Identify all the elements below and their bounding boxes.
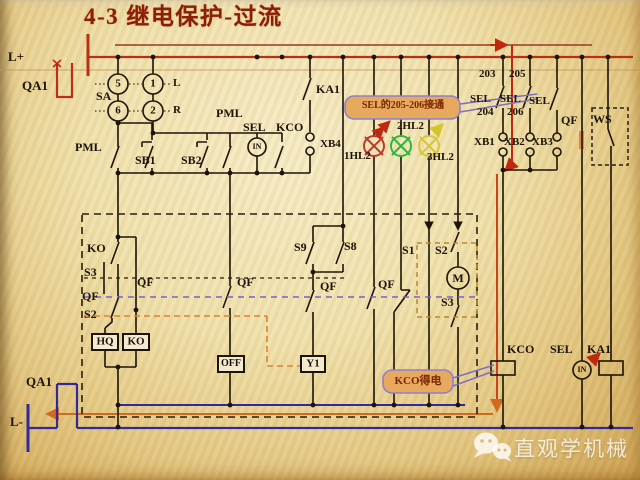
xb2-label: XB2 bbox=[504, 137, 525, 148]
selector-right-label: R bbox=[173, 105, 181, 116]
hq-coil-label: HQ bbox=[96, 337, 113, 348]
yellow-emphasis-arrow bbox=[434, 125, 442, 133]
selector-contact-1: 1 bbox=[150, 79, 156, 90]
indicator-lamps bbox=[364, 122, 599, 362]
qf-label-2: QF bbox=[137, 276, 154, 288]
l-minus-label: L- bbox=[10, 415, 23, 428]
selector-sa-label: SA bbox=[96, 90, 111, 102]
selector-contact-2: 2 bbox=[150, 106, 156, 117]
watermark-text: 直观学机械 bbox=[514, 433, 629, 463]
s3-mid-label: S3 bbox=[441, 296, 454, 308]
xb3-label: XB3 bbox=[532, 137, 553, 148]
qf-label-4: QF bbox=[320, 280, 337, 292]
schematic-canvas bbox=[0, 0, 640, 480]
sb2-label: SB2 bbox=[181, 154, 202, 166]
s8-label: S8 bbox=[344, 240, 357, 252]
terminal-204: 204 bbox=[477, 107, 494, 118]
s2-left-label: S2 bbox=[84, 308, 97, 320]
motor-label: M bbox=[452, 272, 463, 284]
ko-contact-label: KO bbox=[87, 242, 106, 254]
pml-right-label: PML bbox=[216, 107, 243, 119]
red-emphasis-arrow bbox=[383, 122, 389, 128]
qf-label-3: QF bbox=[237, 276, 254, 288]
selector-left-label: L bbox=[173, 78, 180, 89]
kco-contact-label: KCO bbox=[276, 121, 303, 133]
breaker-qa1-bottom-label: QA1 bbox=[26, 375, 52, 388]
y1-coil-label: Y1 bbox=[306, 359, 319, 370]
selector-contact-5: 5 bbox=[115, 79, 121, 90]
qf-left-label: QF bbox=[82, 290, 99, 302]
lamp-1hl2-label: 1HL2 bbox=[344, 151, 371, 162]
qf-top-right-label: QF bbox=[561, 114, 578, 126]
qf-label-5: QF bbox=[378, 278, 395, 290]
indicator-lamp-green bbox=[391, 136, 411, 156]
ka1-coil-label: KA1 bbox=[587, 343, 611, 355]
sel-contact-2-label: SEL bbox=[500, 94, 521, 105]
xb1-label: XB1 bbox=[474, 137, 495, 148]
wechat-icon bbox=[474, 433, 512, 463]
off-coil-label: OFF bbox=[221, 359, 241, 369]
breaker-qa1-top-label: QA1 bbox=[22, 79, 48, 92]
terminal-206: 206 bbox=[507, 107, 524, 118]
sel-contact-1-label: SEL bbox=[470, 94, 491, 105]
kco-coil-label: KCO bbox=[507, 343, 534, 355]
lamp-3hl2-label: 3HL2 bbox=[427, 152, 454, 163]
lamp-2hl2-label: 2HL2 bbox=[397, 121, 424, 132]
terminal-203: 203 bbox=[479, 69, 496, 80]
pml-left-label: PML bbox=[75, 141, 102, 153]
l-plus-label: L+ bbox=[8, 50, 24, 63]
slide-relay-protection-overcurrent: 4-3 继电保护-过流 L+ QA1 SA 5 1 6 2 L R PML SB… bbox=[0, 0, 640, 480]
s1-label: S1 bbox=[402, 244, 415, 256]
ko-coil-label: KO bbox=[127, 337, 144, 348]
callout-kco-note-text: KCO得电 bbox=[385, 376, 451, 387]
sel-in-top-label: IN bbox=[253, 143, 262, 151]
terminal-205: 205 bbox=[509, 69, 526, 80]
ka1-contact-label: KA1 bbox=[316, 83, 340, 95]
page-title: 4-3 继电保护-过流 bbox=[84, 5, 283, 28]
sel-bottom-label: SEL bbox=[550, 343, 573, 355]
s3-left-label: S3 bbox=[84, 266, 97, 278]
s2-mid-label: S2 bbox=[435, 244, 448, 256]
sb1-label: SB1 bbox=[135, 154, 156, 166]
red-emphasis-arrow bbox=[377, 128, 383, 134]
selector-contact-6: 6 bbox=[115, 106, 121, 117]
xb4-label: XB4 bbox=[320, 139, 341, 150]
callout-sel-note-text: SEL的205-206接通 bbox=[347, 101, 459, 111]
sel-in-bottom-label: IN bbox=[578, 366, 587, 374]
sel-top-label: SEL bbox=[243, 121, 266, 133]
sel-contact-3-label: SEL bbox=[529, 96, 550, 107]
s9-label: S9 bbox=[294, 241, 307, 253]
ws-label: WS bbox=[593, 113, 612, 125]
